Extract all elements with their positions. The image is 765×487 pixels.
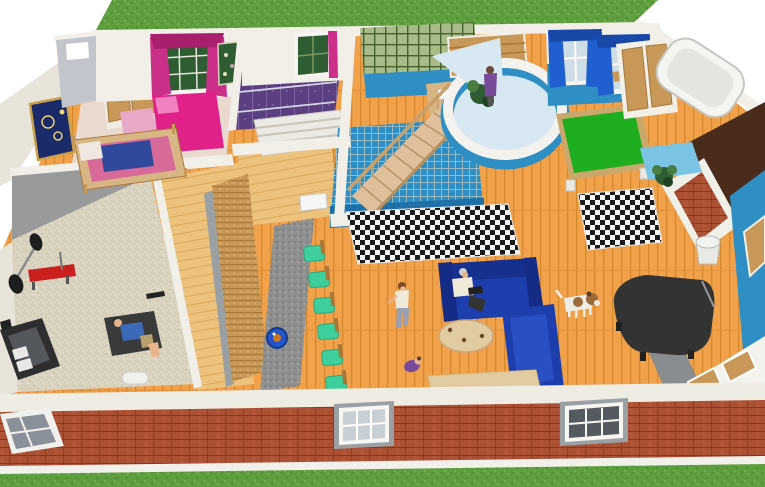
blue-curtain-window-a xyxy=(548,29,604,88)
curtain-sliver xyxy=(328,31,338,78)
nook-fixture xyxy=(66,42,89,60)
piano-leg xyxy=(616,322,622,331)
person-head xyxy=(462,272,468,278)
house-render xyxy=(0,0,765,487)
dog-snout xyxy=(594,300,600,306)
bed-pillow xyxy=(78,141,103,161)
person-pants xyxy=(403,308,409,326)
person-head xyxy=(486,66,494,74)
checkered-rug-center xyxy=(346,204,520,264)
appliance-top xyxy=(300,193,327,211)
bedroom-window xyxy=(150,33,227,97)
piano-leg xyxy=(640,352,646,361)
3d-home-view[interactable] xyxy=(0,0,765,487)
bar-sink xyxy=(267,328,287,348)
oval-table xyxy=(439,320,493,352)
front-window-right xyxy=(560,398,628,446)
front-window-center xyxy=(334,401,394,449)
person-body xyxy=(484,73,497,97)
table-leg xyxy=(566,180,575,191)
planter-bucket xyxy=(696,236,720,264)
hall-floor xyxy=(238,148,338,226)
checkered-rug-right xyxy=(578,188,662,250)
purple-room-window xyxy=(294,31,338,79)
curtain-valance xyxy=(150,33,224,49)
person-top xyxy=(395,290,409,309)
bed-pillow xyxy=(155,96,179,114)
dog-ear xyxy=(587,292,592,297)
piano-leg xyxy=(688,350,694,359)
person-legs xyxy=(487,96,494,106)
white-mat xyxy=(122,372,148,384)
exercise-mat-person xyxy=(104,311,162,357)
